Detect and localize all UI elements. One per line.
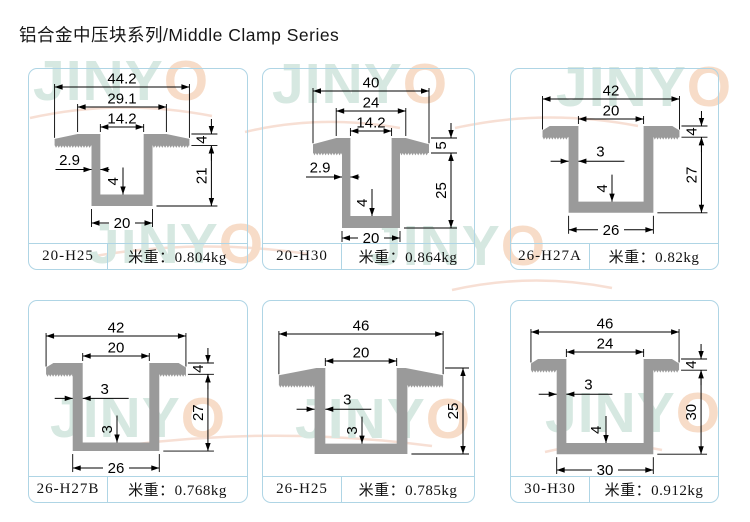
model-label: 26-H27B [29, 477, 108, 502]
svg-text:4: 4 [683, 360, 700, 368]
weight-label: 米重：0.864kg [342, 244, 474, 269]
svg-text:14.2: 14.2 [356, 115, 385, 132]
svg-text:26: 26 [108, 460, 125, 477]
svg-text:24: 24 [363, 95, 380, 112]
profile-drawing: 44.229.114.22.9442120 [29, 69, 249, 246]
svg-text:24: 24 [597, 336, 614, 353]
svg-text:3: 3 [584, 377, 592, 394]
profile-drawing: 42203342726 [29, 301, 249, 479]
svg-text:4: 4 [683, 127, 700, 135]
svg-text:3: 3 [99, 425, 116, 433]
svg-text:4: 4 [193, 136, 210, 144]
model-label: 20-H30 [263, 244, 342, 269]
svg-text:25: 25 [445, 403, 462, 420]
svg-text:4: 4 [354, 199, 371, 207]
card-footer: 26-H27B 米重：0.768kg [29, 476, 247, 502]
profile-card-20-H25: 44.229.114.22.9442120 20-H25 米重：0.804kg [28, 68, 248, 270]
catalog-page: { "page": { "title": "铝合金中压块系列/Middle Cl… [0, 0, 750, 522]
svg-text:27: 27 [190, 404, 207, 421]
svg-text:46: 46 [353, 318, 370, 335]
profile-card-26-H25: 46203325 26-H25 米重：0.785kg [262, 300, 475, 503]
svg-text:4: 4 [190, 365, 207, 373]
svg-text:42: 42 [603, 83, 620, 100]
model-label: 26-H27A [511, 244, 590, 269]
svg-text:46: 46 [597, 316, 614, 333]
model-label: 30-H30 [511, 477, 590, 502]
weight-label: 米重：0.804kg [108, 244, 247, 269]
svg-text:14.2: 14.2 [107, 111, 136, 128]
card-footer: 30-H30 米重：0.912kg [511, 476, 718, 502]
model-label: 26-H25 [263, 477, 342, 502]
svg-text:26: 26 [603, 222, 620, 239]
svg-text:4: 4 [594, 184, 611, 192]
svg-text:4: 4 [588, 426, 605, 434]
svg-text:25: 25 [433, 182, 450, 199]
svg-text:29.1: 29.1 [107, 91, 136, 108]
svg-text:20: 20 [603, 103, 620, 120]
svg-text:5: 5 [433, 141, 450, 149]
page-title: 铝合金中压块系列/Middle Clamp Series [19, 22, 339, 47]
svg-text:30: 30 [683, 404, 700, 421]
svg-text:20: 20 [353, 345, 370, 362]
svg-text:40: 40 [363, 75, 380, 92]
svg-text:44.2: 44.2 [107, 71, 136, 88]
card-footer: 26-H27A 米重：0.82kg [511, 243, 718, 269]
profile-card-26-H27A: 42203442726 26-H27A 米重：0.82kg [510, 68, 719, 270]
svg-text:3: 3 [344, 426, 361, 434]
profile-card-30-H30: 46243443030 30-H30 米重：0.912kg [510, 300, 719, 503]
svg-text:3: 3 [343, 392, 351, 409]
profile-drawing: 402414.22.9452520 [263, 69, 476, 246]
svg-text:27: 27 [683, 167, 700, 184]
card-footer: 20-H30 米重：0.864kg [263, 243, 474, 269]
svg-text:20: 20 [114, 215, 131, 232]
profile-card-26-H27B: 42203342726 26-H27B 米重：0.768kg [28, 300, 248, 503]
svg-text:20: 20 [108, 340, 125, 357]
svg-text:3: 3 [596, 144, 604, 161]
profile-drawing: 46243443030 [511, 301, 720, 479]
svg-text:4: 4 [105, 177, 122, 185]
model-label: 20-H25 [29, 244, 108, 269]
svg-text:42: 42 [108, 320, 125, 337]
profile-drawing: 46203325 [263, 301, 476, 479]
weight-label: 米重：0.912kg [590, 477, 718, 502]
weight-label: 米重：0.82kg [590, 244, 718, 269]
weight-label: 米重：0.785kg [342, 477, 474, 502]
svg-text:2.9: 2.9 [310, 160, 331, 177]
svg-text:21: 21 [193, 167, 210, 184]
svg-text:2.9: 2.9 [59, 152, 80, 169]
weight-label: 米重：0.768kg [108, 477, 247, 502]
card-footer: 26-H25 米重：0.785kg [263, 476, 474, 502]
svg-text:3: 3 [101, 381, 109, 398]
card-footer: 20-H25 米重：0.804kg [29, 243, 247, 269]
profile-drawing: 42203442726 [511, 69, 720, 246]
profile-card-20-H30: 402414.22.9452520 20-H30 米重：0.864kg [262, 68, 475, 270]
